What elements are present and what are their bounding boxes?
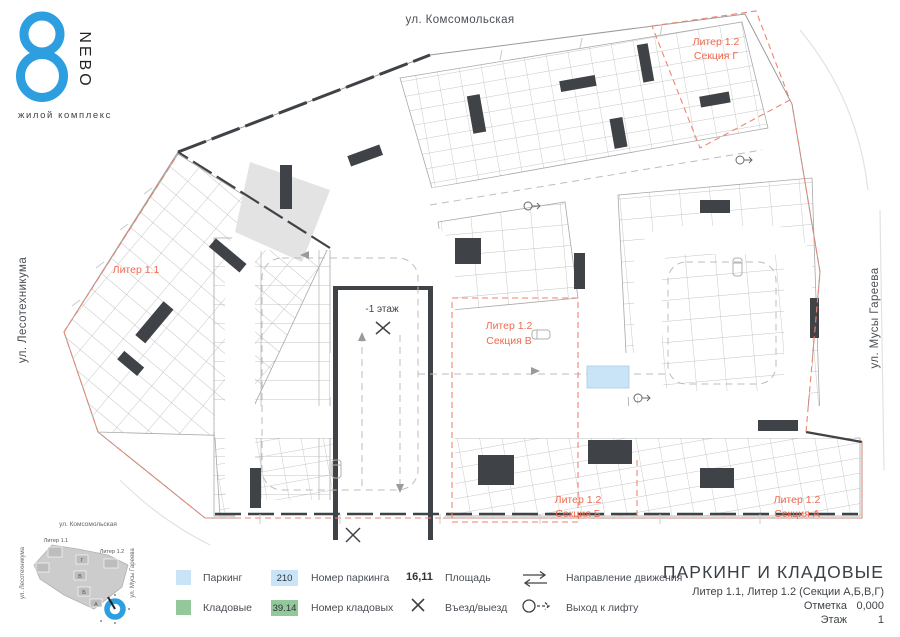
legend-storage-swatch [176,600,191,615]
minimap-sec-a: А [94,602,98,608]
label-liter-1-2-a-line1: Литер 1.2 [774,494,821,506]
floor-value: 1 [850,614,884,626]
minimap-sec-g: Г [81,558,84,564]
minimap: ул. Комсомольская ул. Лесотехникума ул. … [8,513,160,635]
title-block: ПАРКИНГ И КЛАДОВЫЕ Литер 1.1, Литер 1.2 … [484,562,884,626]
label-liter-1-2-a-line2: Секция А [774,508,820,520]
label-liter-1-2-v-line1: Литер 1.2 [486,320,533,332]
page-title: ПАРКИНГ И КЛАДОВЫЕ [484,562,884,583]
minimap-liter12: Литер 1.2 [100,549,124,555]
label-liter-1-1: Литер 1.1 [113,264,160,276]
highlighted-parking-stall[interactable] [587,366,629,388]
legend-storage-number-label: Номер кладовых [311,602,393,614]
floor-label: Этаж [821,614,847,626]
mark-label: Отметка [804,600,847,612]
legend-parking-number: 210 [271,570,298,586]
legend-parking-number-label: Номер паркинга [311,572,389,584]
label-liter-1-2-b-line2: Секция Б [555,508,600,520]
page-subtitle: Литер 1.1, Литер 1.2 (Секции А,Б,В,Г) [484,586,884,598]
legend-parking-label: Паркинг [203,572,242,584]
label-liter-1-2-g-line1: Литер 1.2 [693,36,740,48]
legend-parking-swatch [176,570,191,585]
page: NEBO жилой комплекс ул. Комсомольская ул… [0,0,900,637]
floor-row: Этаж 1 [484,614,884,626]
minimap-liter11: Литер 1.1 [44,538,68,544]
legend-storage-label: Кладовые [203,602,252,614]
minimap-plan: Литер 1.1 Литер 1.2 Г В Б А [8,513,160,635]
mark-row: Отметка 0,000 [484,600,884,612]
label-liter-1-2-g-line2: Секция Г [694,50,738,62]
entry-exit-icon [409,596,427,614]
ramp-level-label: -1 этаж [365,304,399,315]
legend-area-value: 16,11 [406,571,433,583]
minimap-sec-b: Б [82,590,86,596]
label-liter-1-2-v-line2: Секция В [486,335,532,347]
label-liter-1-2-b-line1: Литер 1.2 [555,494,602,506]
mark-value: 0,000 [850,600,884,612]
minimap-sec-v: В [78,574,82,580]
legend-storage-number: 39.14 [271,600,298,616]
